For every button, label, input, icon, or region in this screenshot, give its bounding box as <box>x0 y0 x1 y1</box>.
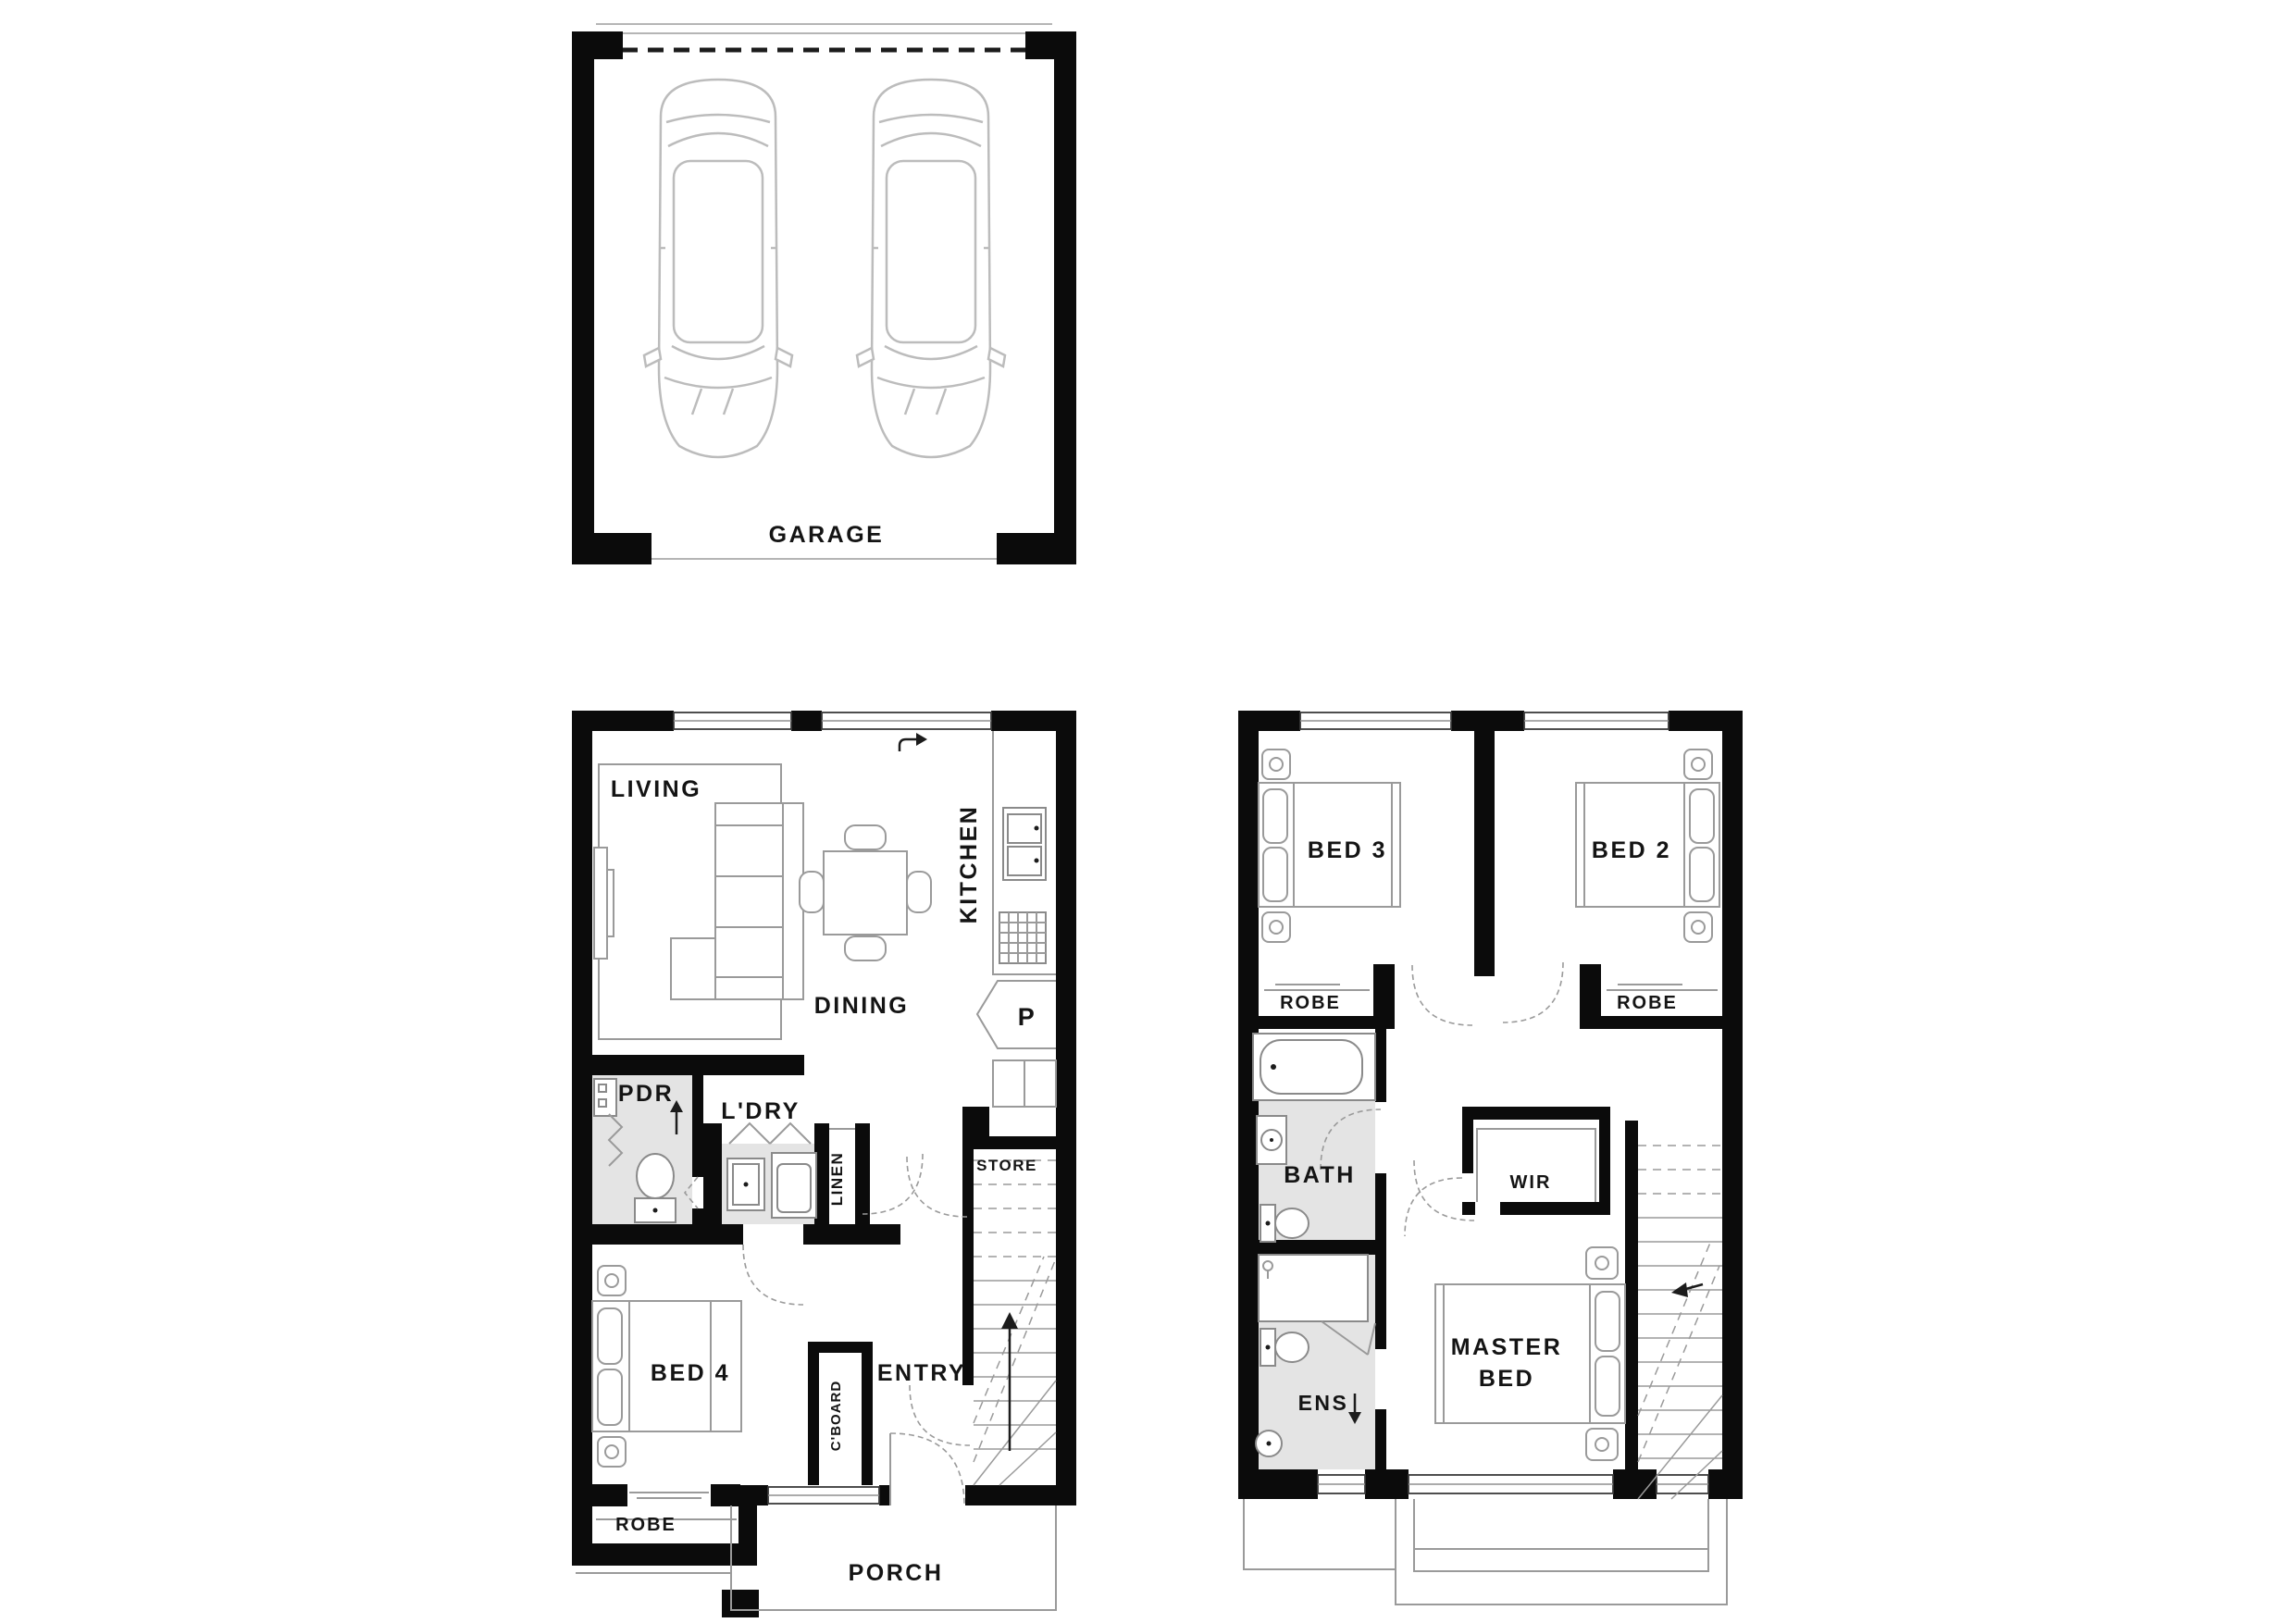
sink-icon <box>1003 808 1046 880</box>
dining-setting-icon <box>800 825 931 960</box>
bed2-label: BED 2 <box>1592 837 1671 863</box>
bedside-table-icon <box>1586 1429 1618 1460</box>
dining-label: DINING <box>814 993 910 1019</box>
porch-label: PORCH <box>849 1560 944 1586</box>
laundry-bifold-door <box>729 1123 811 1144</box>
bed4-room <box>592 1266 741 1519</box>
garage-label: GARAGE <box>769 522 885 548</box>
pantry-label: P <box>1018 1003 1037 1031</box>
laundry-tub-icon <box>727 1158 764 1210</box>
kitchen-bench <box>977 731 1056 1107</box>
bedside-table-icon <box>598 1266 626 1295</box>
living-room <box>594 764 803 1039</box>
bed2-door-arc <box>1503 962 1563 1022</box>
tv-unit-icon <box>594 848 614 959</box>
bedside-table-icon <box>1586 1247 1618 1279</box>
bath-label: BATH <box>1284 1162 1356 1188</box>
wir-door-arc <box>1405 1178 1462 1236</box>
garage-door <box>596 24 1052 50</box>
wir-label: WIR <box>1510 1172 1552 1193</box>
bed4-label: BED 4 <box>651 1360 730 1386</box>
entry-direction-arrow <box>900 733 927 751</box>
master-bed-label-line1: MASTER <box>1451 1334 1563 1360</box>
garage-plan: GARAGE <box>572 19 1076 566</box>
bedside-table-icon <box>1684 912 1712 942</box>
toilet-icon <box>1260 1205 1309 1242</box>
powder-label: PDR <box>618 1081 674 1107</box>
car-icon <box>644 80 792 457</box>
stairs-ground <box>974 1160 1056 1485</box>
cupboard-label: C'BOARD <box>828 1381 844 1451</box>
basin-icon <box>1256 1431 1282 1456</box>
stairs-up-arrow <box>1001 1312 1018 1451</box>
laundry-label: L'DRY <box>721 1098 800 1124</box>
bedside-table-icon <box>1262 750 1290 779</box>
roof-outline <box>1244 1499 1727 1604</box>
porch-pier <box>722 1590 759 1617</box>
floorplan-page: GARAGE <box>0 0 2296 1623</box>
cooktop-icon <box>999 912 1046 963</box>
bed3-door-arc <box>1412 965 1472 1025</box>
master-bed-label-line2: BED <box>1479 1366 1534 1392</box>
living-label: LIVING <box>611 776 701 802</box>
hall-door-arc <box>863 1154 923 1214</box>
robe-left-label: ROBE <box>1280 993 1341 1013</box>
bedside-table-icon <box>598 1437 626 1467</box>
bed3-room <box>1259 750 1400 990</box>
wir <box>1405 1129 1595 1236</box>
bedside-table-icon <box>1262 912 1290 942</box>
kitchen-label: KITCHEN <box>956 805 982 924</box>
entry-label: ENTRY <box>877 1360 966 1386</box>
bed2-room <box>1576 750 1719 990</box>
toilet-icon <box>635 1154 676 1222</box>
sofa-icon <box>671 803 803 999</box>
entry-door-arc <box>890 1433 964 1505</box>
ground-floor-plan: LIVING DINING KITCHEN P PDR L'DRY LINEN … <box>572 711 1076 1623</box>
bed3-label: BED 3 <box>1308 837 1387 863</box>
bathtub-icon <box>1253 1034 1375 1100</box>
basin-icon <box>594 1079 616 1116</box>
stairs-first <box>1638 1146 1722 1499</box>
store-door-arc <box>907 1157 967 1217</box>
toilet-icon <box>1260 1329 1309 1366</box>
garage-walls <box>572 31 1076 564</box>
bed4-door-arc <box>743 1245 803 1305</box>
car-icon <box>857 80 1005 457</box>
first-floor-plan: BED 3 BED 2 ROBE ROBE BATH WIR ENS MASTE… <box>1238 711 1743 1617</box>
laundry <box>727 1123 816 1218</box>
washing-machine-icon <box>772 1153 816 1218</box>
ensuite-label: ENS <box>1298 1391 1349 1415</box>
vanity-icon <box>1257 1116 1286 1164</box>
robe-right-label: ROBE <box>1617 993 1678 1013</box>
store-label: STORE <box>976 1157 1037 1174</box>
robe-label: ROBE <box>615 1515 676 1535</box>
bedside-table-icon <box>1684 750 1712 779</box>
pantry <box>977 981 1056 1048</box>
linen-label: LINEN <box>828 1152 846 1207</box>
